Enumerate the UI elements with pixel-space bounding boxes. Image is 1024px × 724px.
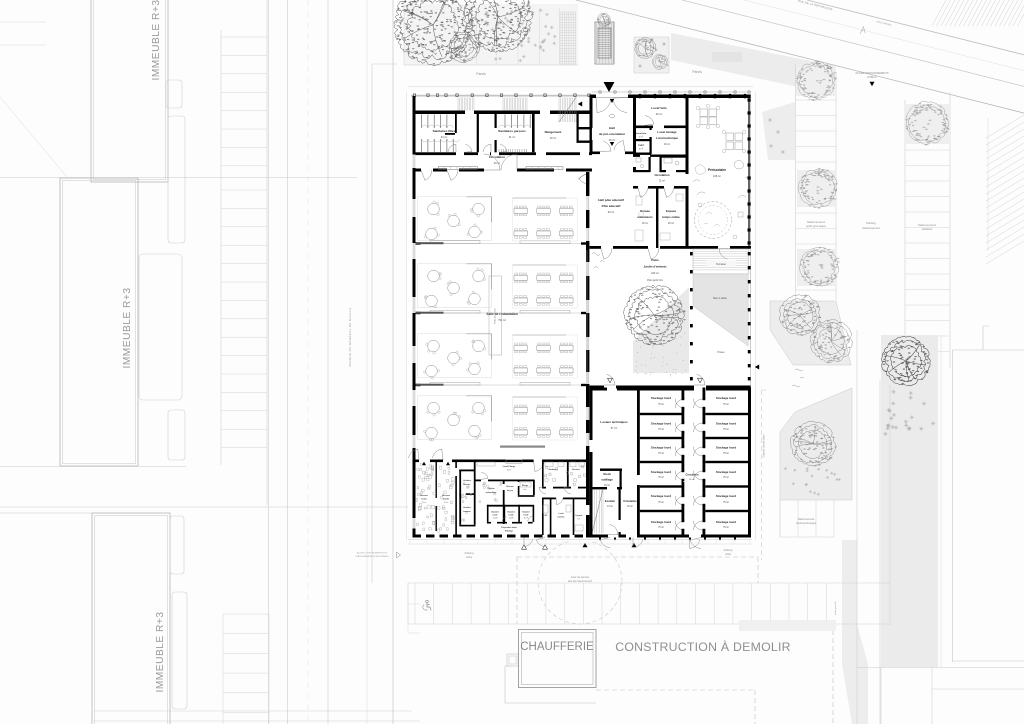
svg-text:Local ménage: Local ménage (657, 130, 677, 134)
svg-text:36 m²: 36 m² (507, 469, 512, 472)
svg-text:Escalier: Escalier (605, 499, 615, 503)
svg-text:CONSTRUCTION À DEMOLIR: CONSTRUCTION À DEMOLIR (615, 639, 791, 654)
svg-text:Déboîtage: Déboîtage (505, 530, 513, 533)
svg-text:Stockage lourd: Stockage lourd (716, 494, 736, 498)
svg-text:75 m²: 75 m² (658, 428, 664, 431)
svg-text:froide: froide (493, 515, 498, 517)
svg-text:16 m²: 16 m² (664, 143, 670, 146)
svg-text:792 m²: 792 m² (498, 319, 506, 322)
svg-text:Stockage lourd: Stockage lourd (716, 446, 736, 450)
svg-text:75 m²: 75 m² (723, 476, 729, 479)
svg-text:Stationnements: Stationnements (807, 220, 826, 224)
svg-text:Terrasse: Terrasse (716, 262, 727, 266)
svg-text:Parking: Parking (465, 551, 474, 555)
svg-text:57 m²: 57 m² (611, 427, 618, 430)
svg-text:Patio: Patio (651, 258, 659, 262)
svg-text:froide: froide (509, 515, 514, 517)
svg-text:hommes: hommes (463, 511, 470, 513)
svg-text:limite parcelle: limite parcelle (834, 601, 837, 615)
svg-text:Stockage lourd: Stockage lourd (651, 422, 671, 426)
svg-text:réchauffage: réchauffage (486, 492, 497, 494)
svg-text:vélos: vélos (466, 555, 473, 559)
svg-text:75 m²: 75 m² (658, 526, 664, 529)
svg-text:26 m²: 26 m² (609, 139, 616, 142)
svg-text:Lingerie: Lingerie (576, 515, 583, 517)
svg-text:Chambre: Chambre (491, 512, 499, 514)
svg-text:poids gros larges: poids gros larges (806, 224, 826, 228)
svg-text:poids lourds larges: poids lourds larges (796, 522, 817, 525)
svg-text:Stockage lourd: Stockage lourd (716, 520, 736, 524)
svg-text:Vestiaire: Vestiaire (463, 479, 471, 482)
svg-text:Parvis: Parvis (476, 72, 486, 76)
svg-text:Hall: Hall (609, 126, 615, 130)
svg-text:Stockage lourd: Stockage lourd (716, 470, 736, 474)
svg-text:75 m²: 75 m² (658, 476, 664, 479)
svg-text:Vestiaire: Vestiaire (463, 506, 471, 509)
svg-text:Réserve: Réserve (506, 486, 513, 488)
svg-text:Stockage lourd: Stockage lourd (651, 470, 671, 474)
svg-text:Cuisine: Cuisine (487, 488, 495, 490)
svg-text:animateurs: animateurs (637, 215, 653, 219)
svg-text:fraîche: fraîche (443, 498, 450, 501)
svg-text:Sanitaires filles: Sanitaires filles (433, 129, 456, 133)
svg-text:Parking: Parking (866, 221, 876, 225)
svg-text:Jour/B: Jour/B (509, 518, 514, 520)
svg-text:IMMEUBLE R+3: IMMEUBLE R+3 (122, 287, 133, 368)
svg-text:Pôle éducatif: Pôle éducatif (602, 204, 621, 208)
svg-text:Rangement: Rangement (545, 130, 562, 134)
svg-text:Circulation: Circulation (654, 173, 669, 177)
svg-text:STATIONNEMENTS PERSONNELS: STATIONNEMENTS PERSONNELS (355, 555, 389, 558)
svg-text:108 m²: 108 m² (713, 175, 721, 178)
svg-text:220 m²: 220 m² (651, 272, 659, 275)
svg-text:43 m²: 43 m² (494, 162, 501, 165)
svg-text:Bac à sable: Bac à sable (713, 296, 727, 300)
svg-text:5 m²: 5 m² (639, 136, 643, 139)
svg-text:Emprise constructible: Emprise constructible (763, 434, 766, 458)
svg-text:19 m²: 19 m² (550, 137, 557, 140)
svg-text:Salle de restauration: Salle de restauration (486, 312, 517, 316)
svg-text:3 m²: 3 m² (639, 148, 643, 151)
svg-text:Stationnements: Stationnements (918, 223, 937, 227)
svg-text:Stockage lourd: Stockage lourd (651, 494, 671, 498)
svg-text:de pré-orientation: de pré-orientation (599, 132, 625, 136)
svg-text:62 m²: 62 m² (689, 478, 695, 481)
svg-text:75 m²: 75 m² (723, 526, 729, 529)
svg-text:Parvis: Parvis (692, 70, 702, 74)
svg-text:Local info: Local info (636, 133, 647, 135)
svg-text:IMMEUBLE R+3: IMMEUBLE R+3 (151, 0, 162, 81)
svg-text:Local Vélo: Local Vélo (651, 106, 667, 110)
svg-text:Douches: Douches (572, 469, 580, 471)
svg-text:froide: froide (524, 515, 529, 517)
svg-text:ACCES STATIONNEMENTS: ACCES STATIONNEMENTS (855, 71, 888, 75)
svg-text:Local: Local (559, 513, 564, 515)
svg-text:IMMEUBLE R+3: IMMEUBLE R+3 (155, 611, 166, 692)
svg-text:résidents: résidents (922, 227, 933, 231)
svg-text:34 m²: 34 m² (441, 136, 448, 139)
svg-text:entretien: entretien (557, 516, 564, 519)
svg-text:sèche: sèche (421, 499, 428, 501)
svg-text:Hall pôle éducatif: Hall pôle éducatif (598, 198, 625, 202)
svg-text:Préparation froide: Préparation froide (501, 526, 516, 529)
svg-text:15 m²: 15 m² (422, 501, 427, 504)
svg-text:Jour/B: Jour/B (493, 518, 498, 520)
svg-text:75 m²: 75 m² (658, 501, 664, 504)
svg-text:Périscolaire: Périscolaire (708, 168, 726, 172)
svg-text:Préau: Préau (718, 350, 725, 354)
svg-text:outillage: outillage (601, 478, 613, 482)
svg-text:75 m²: 75 m² (723, 501, 729, 504)
svg-text:Parking: Parking (724, 548, 733, 552)
svg-text:Jardin d'enfants: Jardin d'enfants (643, 265, 666, 269)
svg-text:Sanitaires: Sanitaires (548, 468, 557, 471)
svg-text:Stockage lourd: Stockage lourd (651, 520, 671, 524)
svg-text:Cour de service: Cour de service (571, 575, 590, 579)
svg-text:75 m²: 75 m² (723, 428, 729, 431)
svg-text:Local technique: Local technique (656, 136, 678, 140)
svg-text:aire de retournement: aire de retournement (568, 579, 592, 583)
svg-text:13 m²: 13 m² (607, 505, 613, 508)
svg-text:15 m²: 15 m² (444, 501, 449, 504)
svg-text:Stock: Stock (603, 472, 611, 476)
svg-text:Stockage lourd: Stockage lourd (716, 422, 736, 426)
svg-text:du jour: du jour (507, 490, 513, 492)
svg-text:vélos: vélos (725, 552, 732, 556)
svg-text:Circulation: Circulation (685, 474, 699, 477)
svg-text:B.O.F: B.O.F (524, 518, 528, 520)
svg-text:Puits de lumière: Puits de lumière (494, 307, 497, 323)
svg-text:20 m²: 20 m² (668, 222, 674, 225)
svg-text:31 m²: 31 m² (509, 136, 516, 139)
svg-text:Stockage lourd: Stockage lourd (716, 396, 736, 400)
svg-text:Stockage lourd: Stockage lourd (651, 446, 671, 450)
svg-text:Plonge: Plonge (522, 485, 528, 487)
svg-text:Bureau: Bureau (640, 209, 650, 213)
svg-text:16 m²: 16 m² (642, 222, 648, 225)
svg-text:Stationnements: Stationnements (798, 518, 815, 521)
svg-text:Local Plonge: Local Plonge (503, 466, 516, 468)
svg-text:femmes: femmes (464, 484, 471, 486)
svg-text:75 m²: 75 m² (658, 452, 664, 455)
svg-text:75 m²: 75 m² (658, 403, 664, 406)
svg-text:75 m²: 75 m² (723, 452, 729, 455)
svg-text:8 m²: 8 m² (523, 488, 527, 491)
svg-text:26 m²: 26 m² (656, 113, 663, 116)
svg-text:PUBLIC: PUBLIC (867, 75, 876, 79)
svg-text:TGBT: TGBT (638, 145, 645, 147)
svg-text:Circulation: Circulation (623, 499, 637, 503)
svg-text:stationnement: stationnement (862, 226, 880, 230)
svg-text:Espace: Espace (666, 209, 677, 213)
svg-text:Réserve: Réserve (442, 495, 451, 497)
svg-text:21 m²: 21 m² (659, 180, 665, 183)
svg-text:Réserve: Réserve (420, 495, 429, 497)
svg-text:Locaux techniques: Locaux techniques (600, 420, 628, 424)
svg-text:Patio jardin fins: Patio jardin fins (647, 279, 664, 282)
svg-text:Sanitaires garçons: Sanitaires garçons (498, 129, 526, 133)
svg-text:16 m²: 16 m² (604, 484, 610, 487)
svg-text:Chambre: Chambre (522, 512, 530, 514)
svg-text:Chambre: Chambre (507, 512, 515, 514)
svg-text:75 m²: 75 m² (723, 403, 729, 406)
svg-text:ACCES COUR DE SERVICE ET: ACCES COUR DE SERVICE ET (357, 552, 388, 555)
svg-text:AVENUE DU GÉNÉRAL DE GAULLE: AVENUE DU GÉNÉRAL DE GAULLE (347, 307, 352, 367)
svg-text:temps calme: temps calme (662, 215, 680, 219)
svg-text:16 m²: 16 m² (627, 505, 633, 508)
svg-text:94 m²: 94 m² (608, 211, 615, 214)
svg-text:Stockage lourd: Stockage lourd (651, 396, 671, 400)
svg-text:CHAUFFERIE: CHAUFFERIE (520, 641, 594, 653)
